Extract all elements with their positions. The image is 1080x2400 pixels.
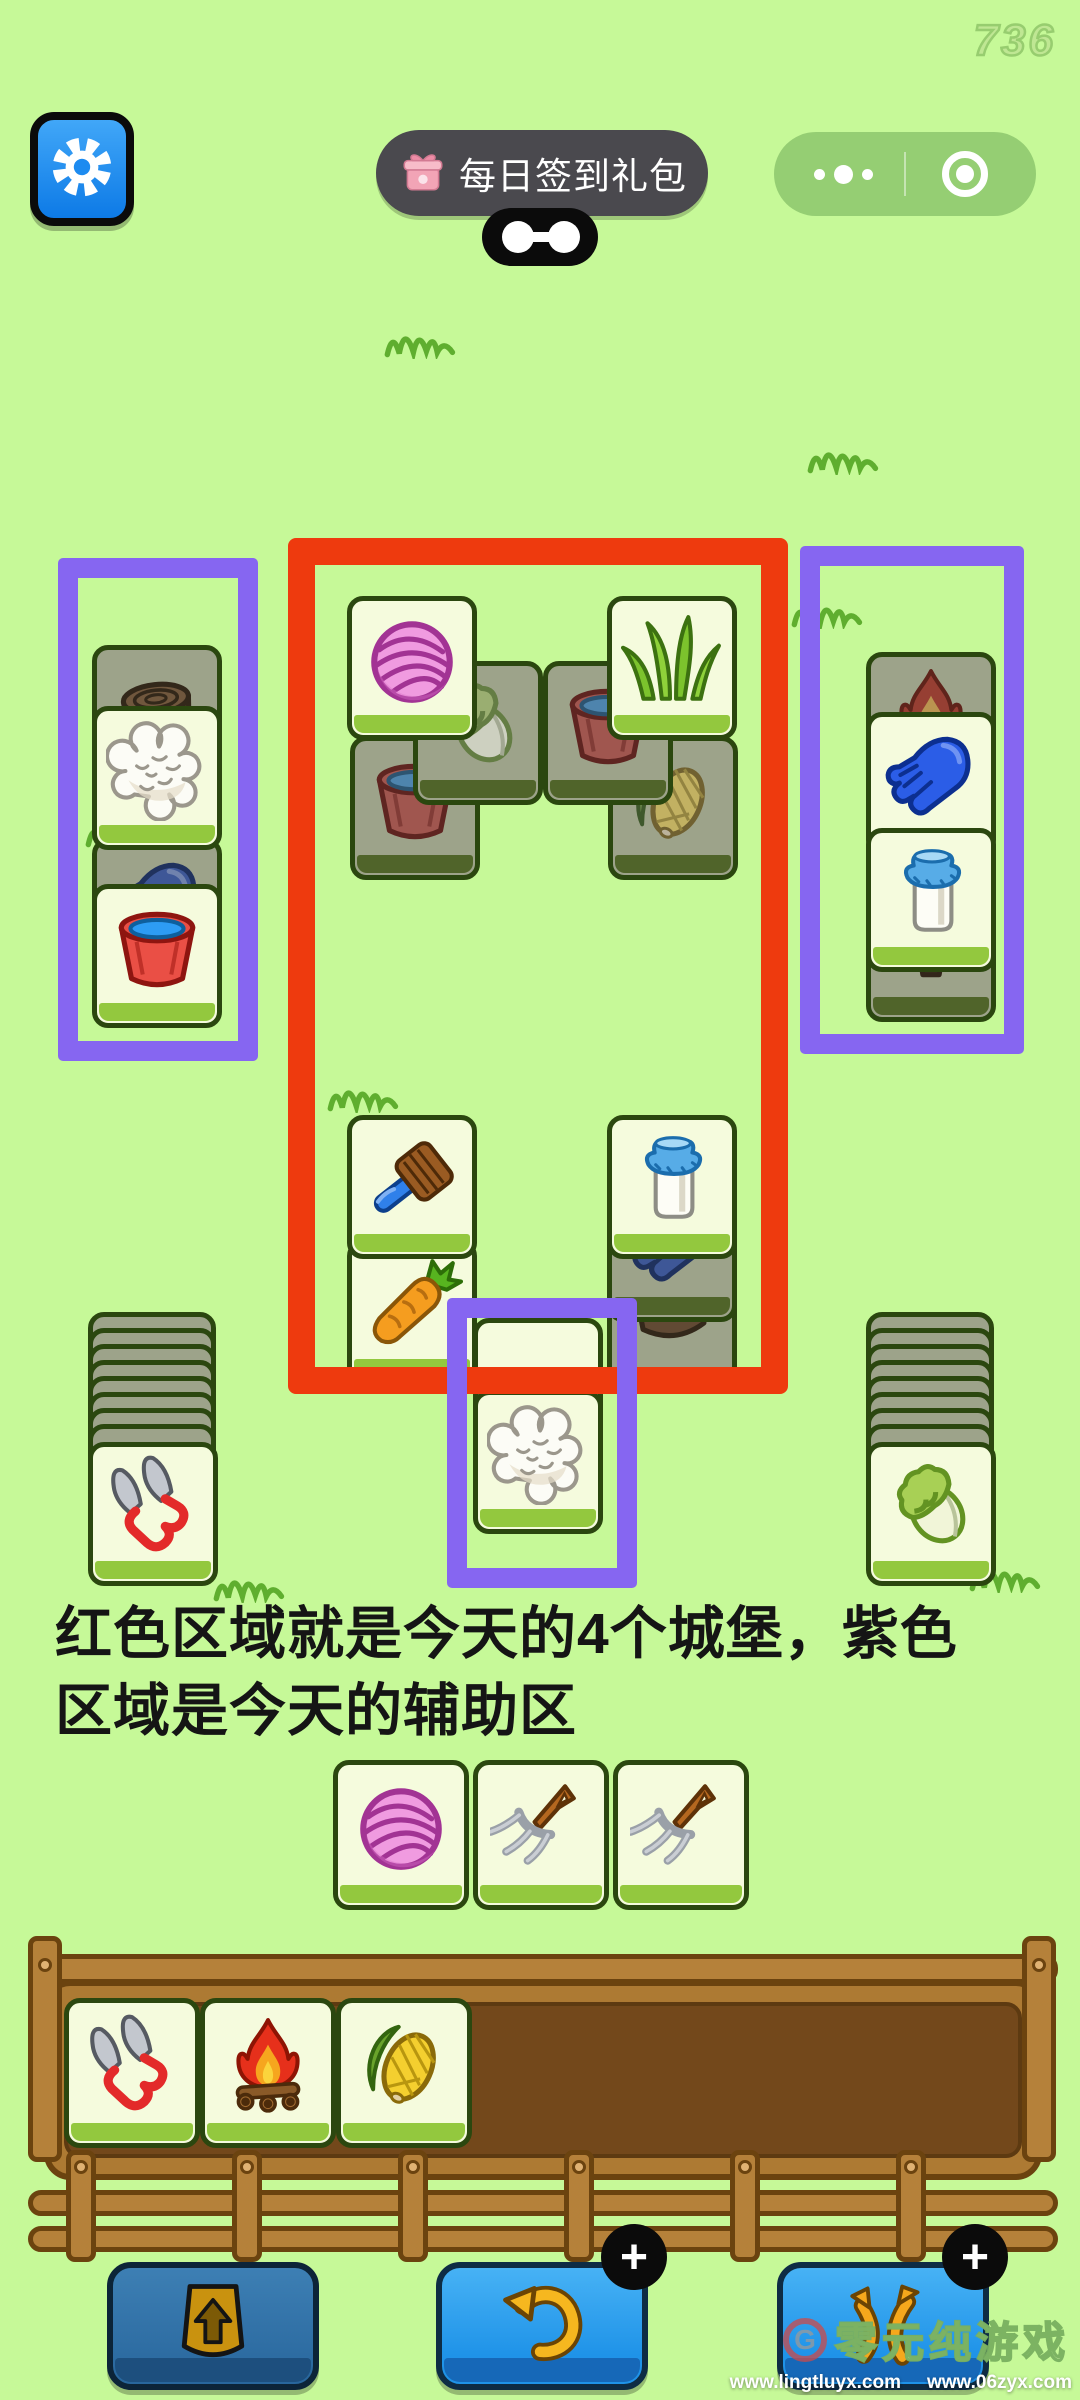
annotation-line2: 区域是今天的辅助区 [55, 1673, 958, 1750]
shuffle-plus-badge[interactable]: + [942, 2224, 1008, 2290]
game-screen: 736 每日签到礼包 红色区域就是今天的4个城堡，紫色 区域是今天的辅助区 [0, 0, 1080, 2400]
yarn-icon [350, 1776, 452, 1878]
tile-cabbage[interactable] [866, 1442, 996, 1586]
wechat-capsule[interactable] [774, 132, 1036, 216]
pitchfork-icon [490, 1776, 592, 1878]
tile-pitchfork[interactable] [613, 1760, 749, 1910]
undo-icon [494, 2275, 590, 2371]
tile-yarn[interactable] [333, 1760, 469, 1910]
eject-button[interactable] [107, 2262, 319, 2390]
assist-region-bottom-outline [447, 1298, 637, 1588]
settings-button[interactable] [30, 112, 134, 226]
eject-icon [165, 2275, 261, 2371]
gear-icon [43, 128, 121, 211]
level-counter: 736 [974, 16, 1056, 66]
shears-icon [81, 2014, 183, 2116]
assist-region-left-outline [58, 558, 258, 1061]
gift-icon [397, 145, 449, 202]
watermark-url-1: www.lingtluyx.com [730, 2372, 901, 2394]
annotation-line1: 红色区域就是今天的4个城堡，紫色 [55, 1596, 958, 1673]
tile-shears[interactable] [64, 1998, 200, 2148]
daily-signin-label: 每日签到礼包 [459, 146, 687, 200]
castle-region-outline [288, 538, 788, 1394]
tile-corn[interactable] [336, 1998, 472, 2148]
assist-region-right-outline [800, 546, 1024, 1054]
watermark: G 零元纯游戏 www.lingtluyx.com www.06zyx.com [730, 2309, 1080, 2400]
circle-dot-icon[interactable] [942, 151, 988, 197]
pitchfork-icon [630, 1776, 732, 1878]
watermark-brand: 零元纯游戏 [835, 2309, 1070, 2370]
annotation-text: 红色区域就是今天的4个城堡，紫色 区域是今天的辅助区 [55, 1596, 958, 1750]
shears-icon [102, 1455, 204, 1557]
corn-icon [353, 2014, 455, 2116]
watermark-url-2: www.06zyx.com [927, 2372, 1072, 2394]
campfire-icon [217, 2014, 319, 2116]
more-icon[interactable] [814, 132, 873, 216]
grass-tuft-icon [806, 438, 882, 476]
undo-plus-badge[interactable]: + [601, 2224, 667, 2290]
watermark-logo: G [783, 2318, 827, 2362]
tile-pitchfork[interactable] [473, 1760, 609, 1910]
grass-tuft-icon [383, 322, 459, 360]
capsule-divider [904, 152, 906, 196]
tile-campfire[interactable] [200, 1998, 336, 2148]
cabbage-icon [880, 1455, 982, 1557]
tile-shears[interactable] [88, 1442, 218, 1586]
bone-icon [480, 204, 600, 268]
